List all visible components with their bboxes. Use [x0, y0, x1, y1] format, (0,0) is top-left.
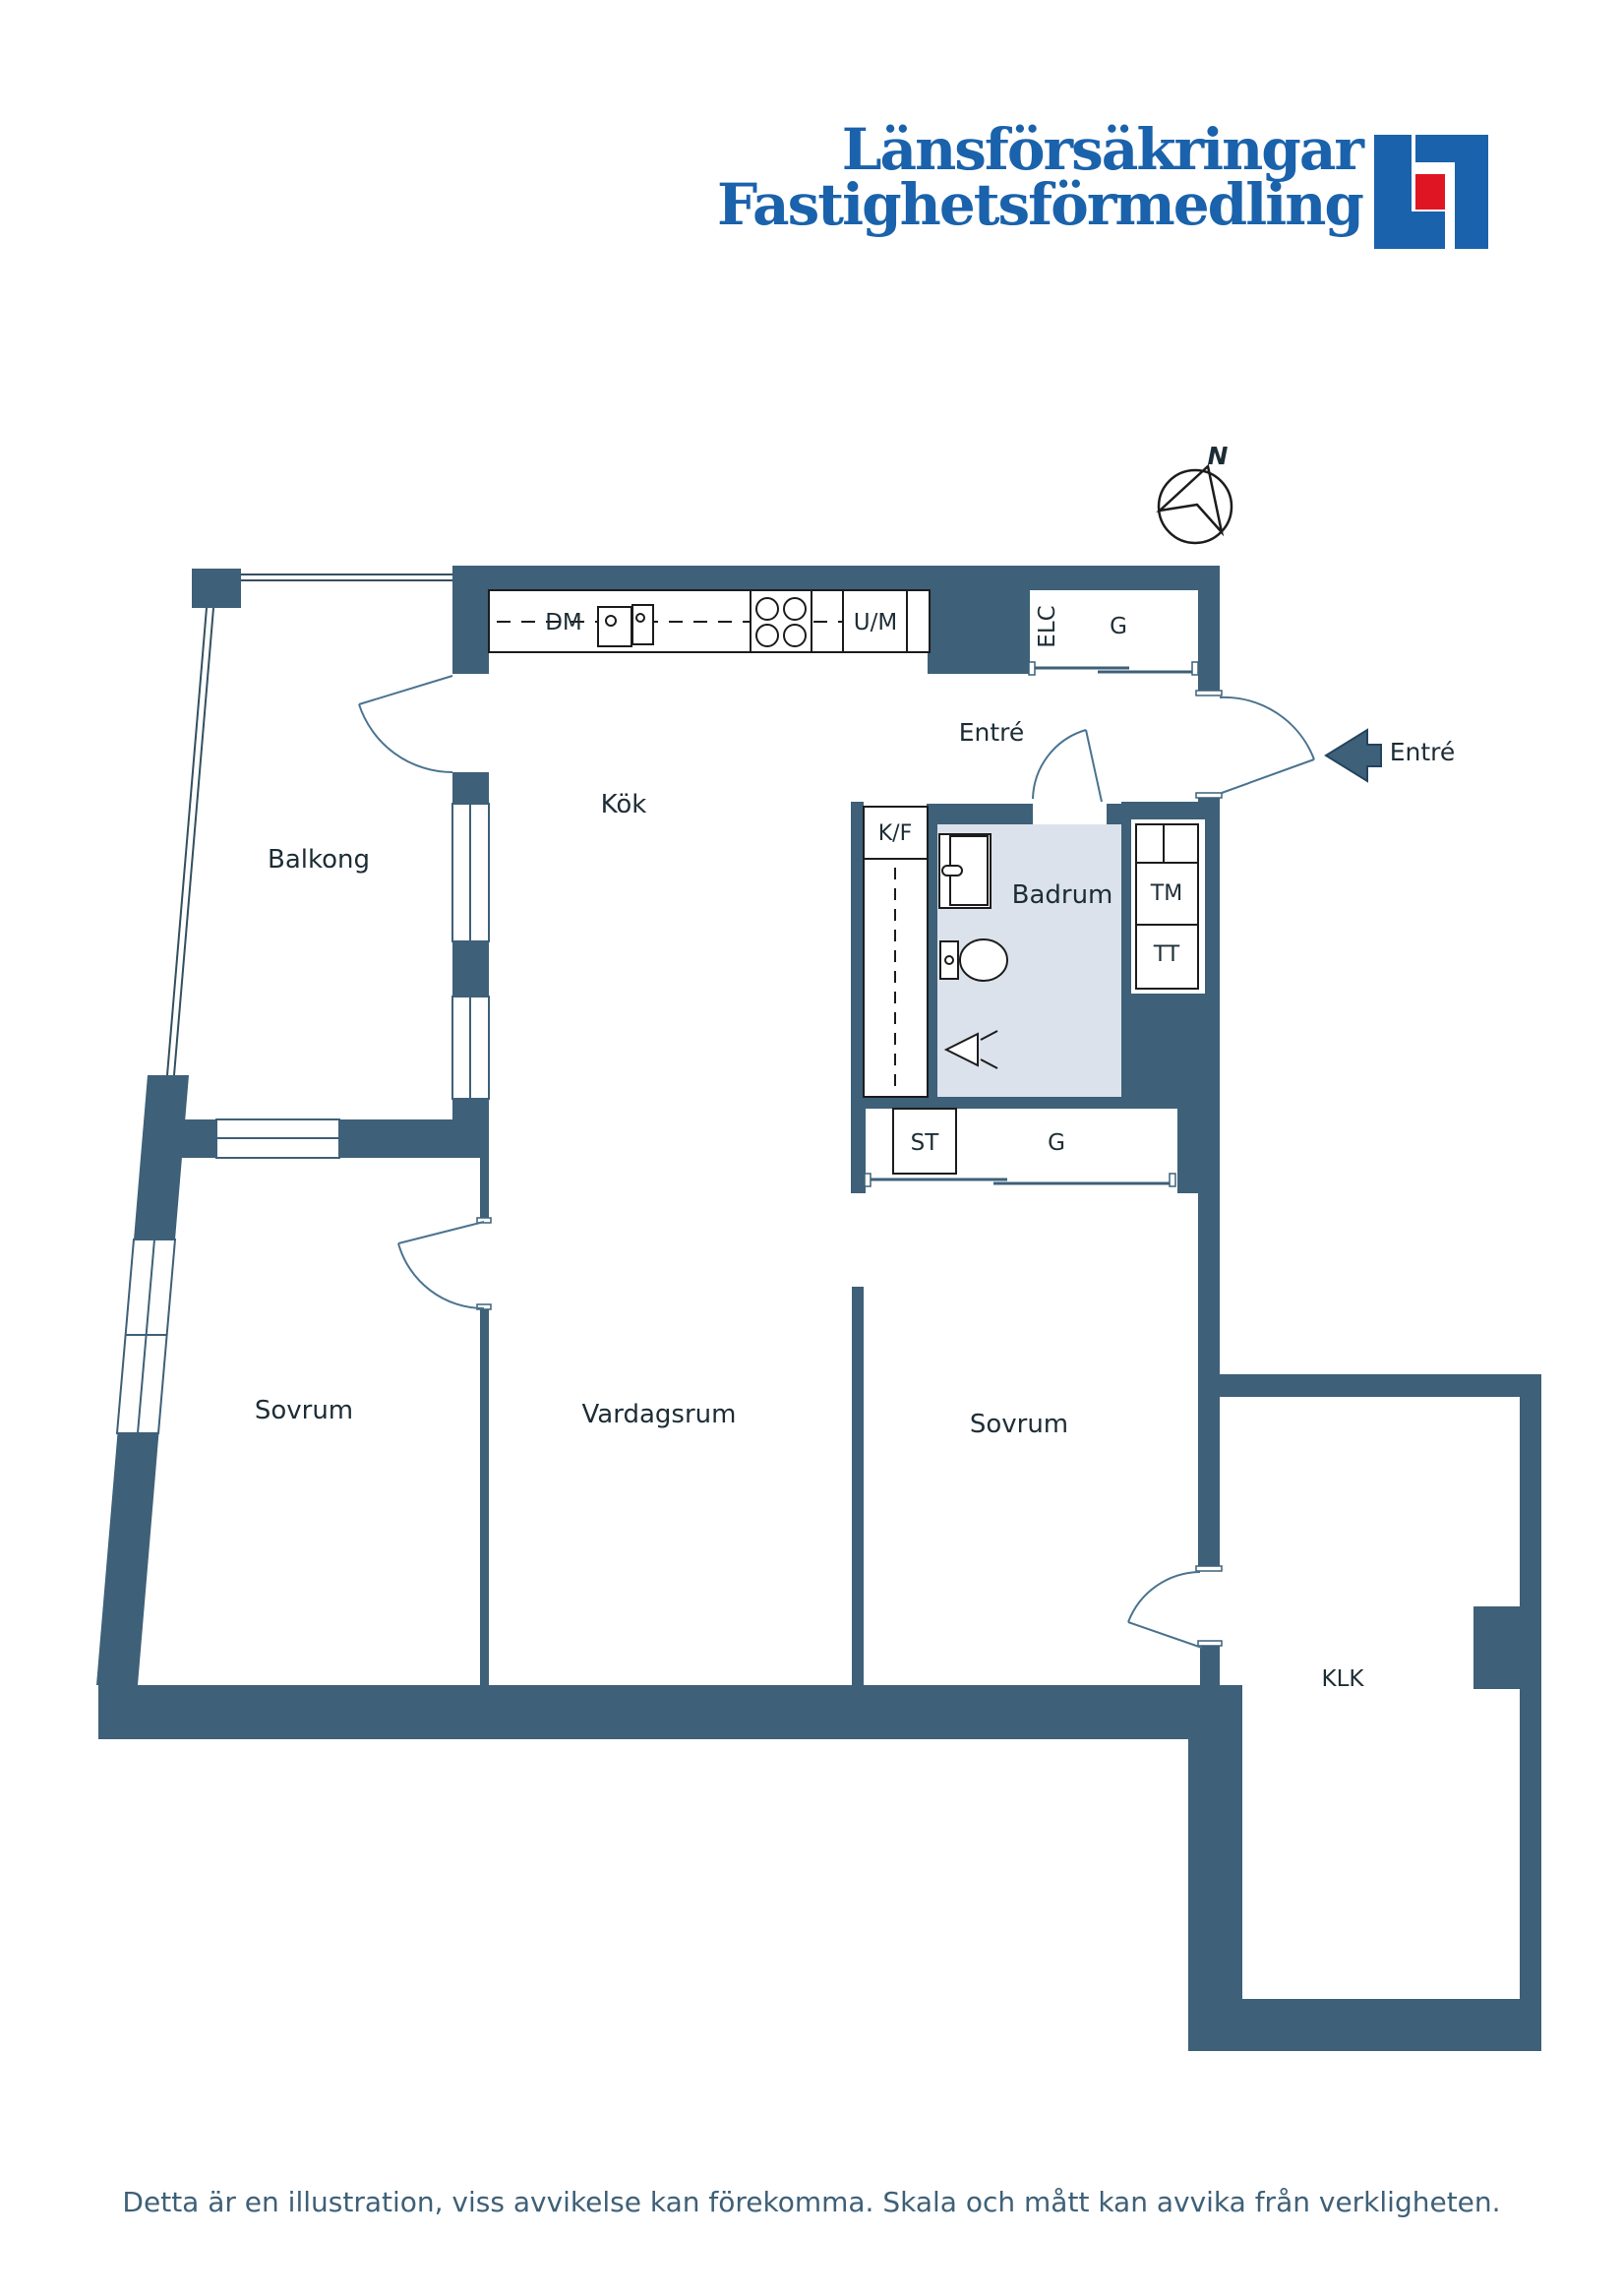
compass-icon: N [1159, 442, 1232, 543]
wall-segment [480, 1308, 489, 1685]
wall-segment [851, 1097, 1220, 1109]
wall-cap [1196, 691, 1222, 695]
bedroom-left-door [398, 1222, 484, 1308]
door-arc [1128, 1572, 1200, 1622]
door-end-cap [1170, 1174, 1175, 1186]
logo-red-square [1415, 174, 1445, 210]
wall-segment [1473, 1606, 1520, 1689]
wall-segment [1107, 804, 1121, 824]
logo-text-line2: Fastighetsförmedling [717, 171, 1363, 238]
wall-segment [1198, 1187, 1220, 1569]
room-label-klk: KLK [1322, 1666, 1365, 1692]
toilet-bowl [960, 939, 1007, 981]
room-label-sovrum-left: Sovrum [255, 1396, 353, 1425]
door-arc [398, 1243, 484, 1308]
entry-arrow-icon [1326, 730, 1381, 781]
room-label-badrum: Badrum [1012, 880, 1113, 910]
wall-segment [452, 590, 489, 674]
label-entre-inside: Entré [959, 718, 1025, 747]
wall-cap [1196, 793, 1222, 798]
room-label-vardagsrum: Vardagsrum [582, 1400, 737, 1429]
wall-segment [339, 1119, 489, 1158]
compass-north-label: N [1208, 442, 1229, 470]
fixture-label-kf: K/F [878, 821, 913, 846]
wall-segment [1177, 1109, 1220, 1193]
logo: Länsförsäkringar Fastighetsförmedling [717, 116, 1488, 249]
label-entre-outside: Entré [1390, 738, 1456, 766]
bathroom-door [1033, 730, 1102, 802]
wall-segment [928, 590, 1030, 674]
fixture-label-g-top: G [1110, 614, 1127, 639]
room-label-balkong: Balkong [268, 845, 370, 875]
footer-disclaimer: Detta är en illustration, viss avvikelse… [122, 2186, 1500, 2218]
door-end-cap [1192, 662, 1198, 675]
wall-segment [1188, 1999, 1541, 2051]
laundry-unit [1131, 819, 1205, 994]
fixture-label-st: ST [911, 1130, 940, 1156]
sink-basin [598, 607, 631, 646]
floor-plan-page: Länsförsäkringar Fastighetsförmedling N [0, 0, 1623, 2296]
fixture-label-tm: TM [1150, 881, 1182, 906]
wall-segment [452, 772, 489, 804]
logo-mark-icon [1374, 135, 1488, 249]
room-label-sovrum-right: Sovrum [970, 1410, 1068, 1439]
wall-cap [1198, 1641, 1222, 1646]
balcony-door [359, 676, 452, 772]
entrance-door [1220, 697, 1314, 793]
compass-needle [1160, 466, 1222, 532]
room-label-kok: Kök [601, 790, 647, 819]
door-arc [1220, 697, 1314, 759]
shower-handle [942, 866, 962, 876]
bedroom-right-door [1128, 1572, 1202, 1648]
railing-line [167, 608, 207, 1075]
door-leaf [1222, 759, 1314, 793]
fixture-label-g-lower: G [1048, 1130, 1065, 1156]
wall-segment [98, 1685, 1242, 1739]
wall-segment [1198, 590, 1220, 695]
door-end-cap [865, 1174, 871, 1186]
wall-segment [192, 569, 241, 608]
fridge-freezer-column [864, 807, 928, 1097]
wall-segment [851, 802, 864, 1097]
wall-segment [452, 566, 1220, 590]
door-leaf [1128, 1622, 1202, 1648]
wall-segment [1220, 1374, 1541, 1397]
door-leaf [359, 676, 452, 704]
door-leaf [398, 1222, 484, 1243]
wall-segment [927, 804, 1033, 824]
wall-segment [852, 1287, 864, 1685]
door-arc [359, 704, 452, 772]
fixture-label-dm: DM [545, 610, 582, 635]
fixture-label-tt: TT [1153, 942, 1180, 967]
wall-segment [452, 1099, 489, 1119]
door-end-cap [1029, 662, 1035, 675]
wall-segment [851, 1109, 866, 1193]
fixture-label-um: U/M [854, 610, 897, 635]
wall-segment [480, 1158, 489, 1222]
walls [96, 566, 1541, 2051]
sink-basin [632, 605, 653, 644]
balcony-railing [167, 574, 452, 1075]
railing-line [174, 608, 213, 1075]
toilet-cistern [940, 941, 958, 979]
wall-segment [452, 941, 489, 997]
fixture-label-elc: ELC [1035, 605, 1060, 647]
door-leaf [1086, 730, 1102, 802]
wall-cap [1196, 1566, 1222, 1571]
wall-segment [1200, 1646, 1220, 1685]
wall-segment [1520, 1374, 1541, 2051]
door-arc [1033, 730, 1086, 799]
